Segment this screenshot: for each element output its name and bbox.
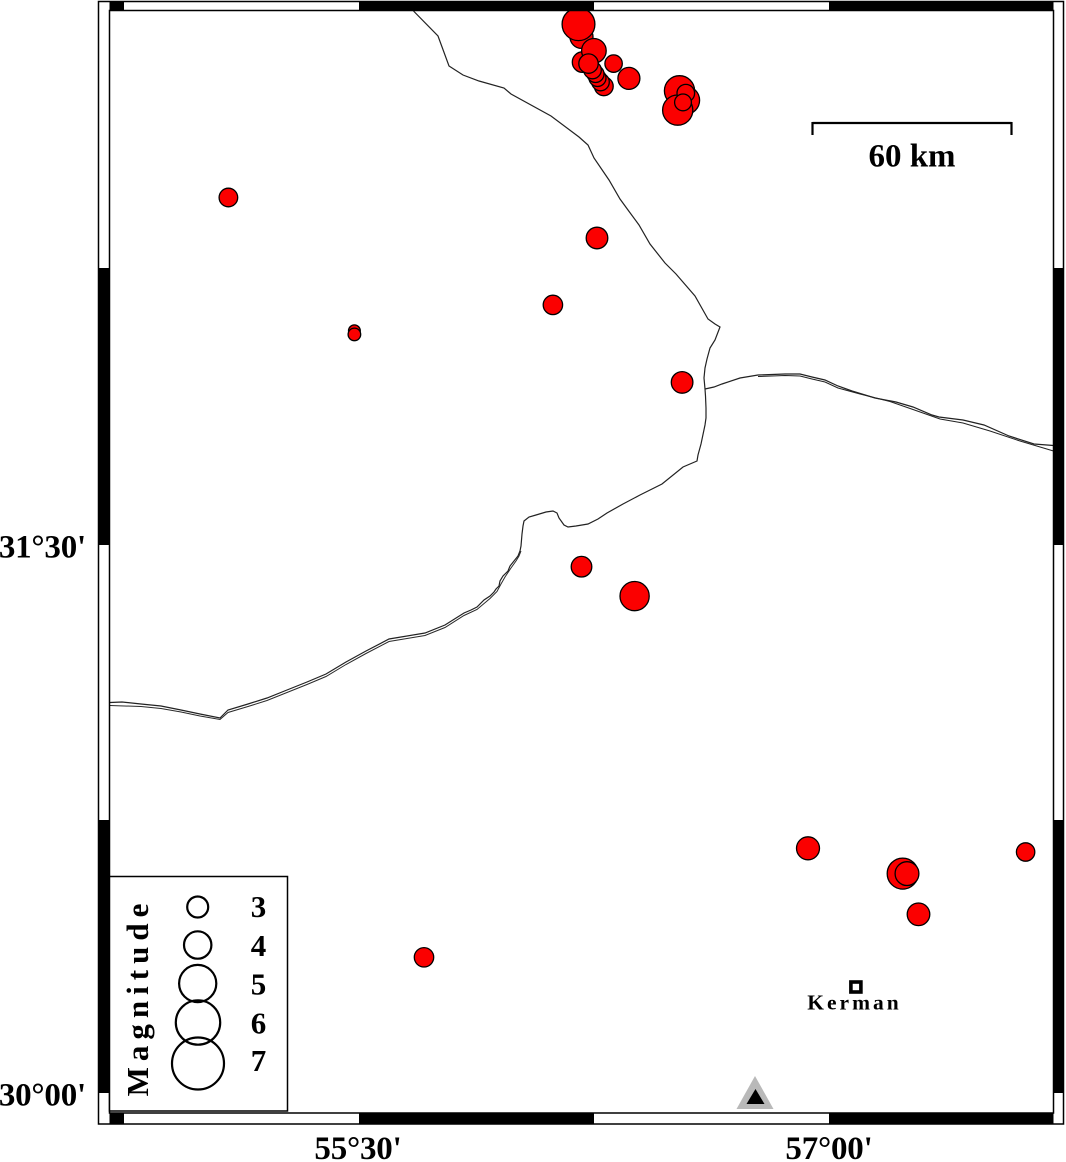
svg-text:6: 6 (251, 1006, 267, 1041)
svg-text:Kerman: Kerman (807, 991, 901, 1015)
svg-text:Magnitude: Magnitude (120, 898, 155, 1097)
svg-text:4: 4 (251, 928, 267, 963)
svg-text:3: 3 (251, 889, 267, 924)
svg-text:31°30': 31°30' (0, 530, 86, 566)
svg-text:5: 5 (251, 967, 267, 1002)
svg-text:55°30': 55°30' (314, 1131, 401, 1162)
svg-text:7: 7 (251, 1043, 267, 1078)
svg-text:60 km: 60 km (868, 139, 955, 175)
svg-text:57°00': 57°00' (785, 1131, 872, 1162)
svg-text:30°00': 30°00' (0, 1078, 86, 1114)
